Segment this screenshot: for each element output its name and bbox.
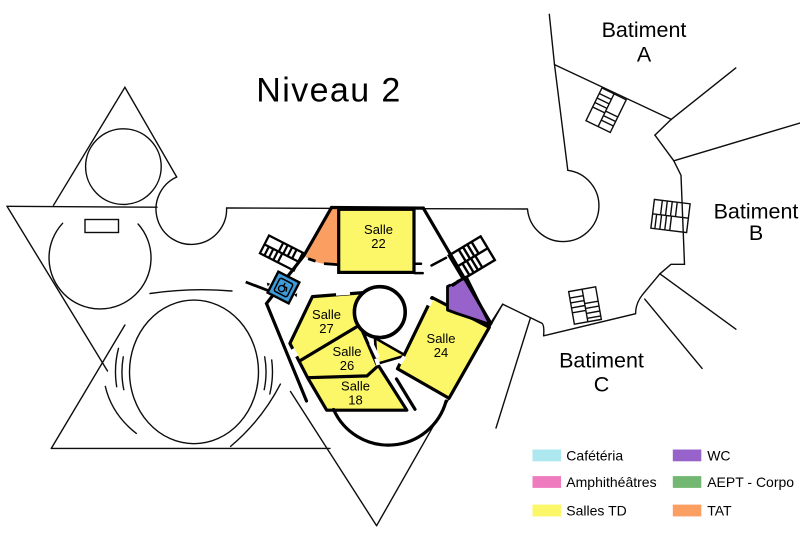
svg-text:TAT: TAT bbox=[707, 502, 732, 518]
svg-text:Salles TD: Salles TD bbox=[566, 502, 626, 518]
svg-text:Batiment: Batiment bbox=[602, 18, 687, 42]
svg-text:Niveau 2: Niveau 2 bbox=[256, 72, 401, 110]
svg-text:Salle: Salle bbox=[333, 344, 362, 359]
svg-text:WC: WC bbox=[707, 447, 730, 463]
svg-text:A: A bbox=[637, 43, 652, 67]
svg-text:Cafétéria: Cafétéria bbox=[566, 447, 623, 463]
svg-text:Batiment: Batiment bbox=[714, 200, 799, 224]
svg-text:C: C bbox=[594, 373, 610, 397]
svg-text:Salle: Salle bbox=[312, 307, 341, 322]
svg-text:26: 26 bbox=[340, 358, 354, 373]
svg-text:18: 18 bbox=[348, 393, 362, 408]
svg-text:Salle: Salle bbox=[364, 222, 393, 237]
svg-text:Batiment: Batiment bbox=[559, 349, 644, 373]
svg-text:B: B bbox=[749, 221, 763, 245]
svg-text:AEPT - Corpo: AEPT - Corpo bbox=[707, 474, 794, 490]
svg-text:Amphithéâtres: Amphithéâtres bbox=[566, 474, 656, 490]
svg-text:22: 22 bbox=[371, 236, 385, 251]
svg-text:24: 24 bbox=[434, 345, 448, 360]
svg-text:Salle: Salle bbox=[427, 331, 456, 346]
svg-text:Salle: Salle bbox=[341, 379, 370, 394]
svg-text:27: 27 bbox=[319, 321, 333, 336]
